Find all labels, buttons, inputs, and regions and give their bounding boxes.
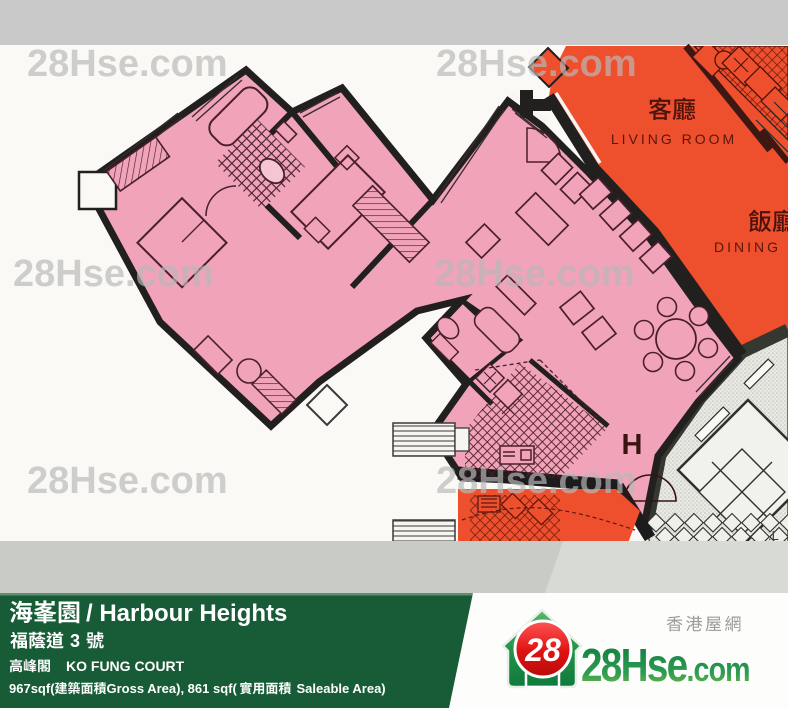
svg-text:LIVING ROOM: LIVING ROOM <box>611 131 737 147</box>
svg-text:28Hse.com: 28Hse.com <box>436 460 637 502</box>
svg-text:28Hse.com: 28Hse.com <box>434 253 635 295</box>
svg-text:28Hse.com: 28Hse.com <box>27 43 228 85</box>
svg-text:28: 28 <box>524 632 561 668</box>
svg-text:Saleable Area): Saleable Area) <box>293 681 386 696</box>
svg-text:/ Harbour Heights: / Harbour Heights <box>86 600 287 627</box>
svg-text:28Hse.com: 28Hse.com <box>27 460 228 502</box>
svg-text:Gross Area), 861 sqf(: Gross Area), 861 sqf( <box>107 681 238 696</box>
svg-text:28Hse.com: 28Hse.com <box>436 43 637 85</box>
svg-text:3: 3 <box>70 631 80 651</box>
svg-text:28Hse.com: 28Hse.com <box>13 253 214 295</box>
svg-text:.L: .L <box>768 528 779 543</box>
svg-text:KO FUNG COURT: KO FUNG COURT <box>66 658 185 674</box>
svg-text:H: H <box>622 429 643 461</box>
svg-text:967sqf(: 967sqf( <box>9 681 55 696</box>
svg-text:DINING R: DINING R <box>714 239 788 255</box>
